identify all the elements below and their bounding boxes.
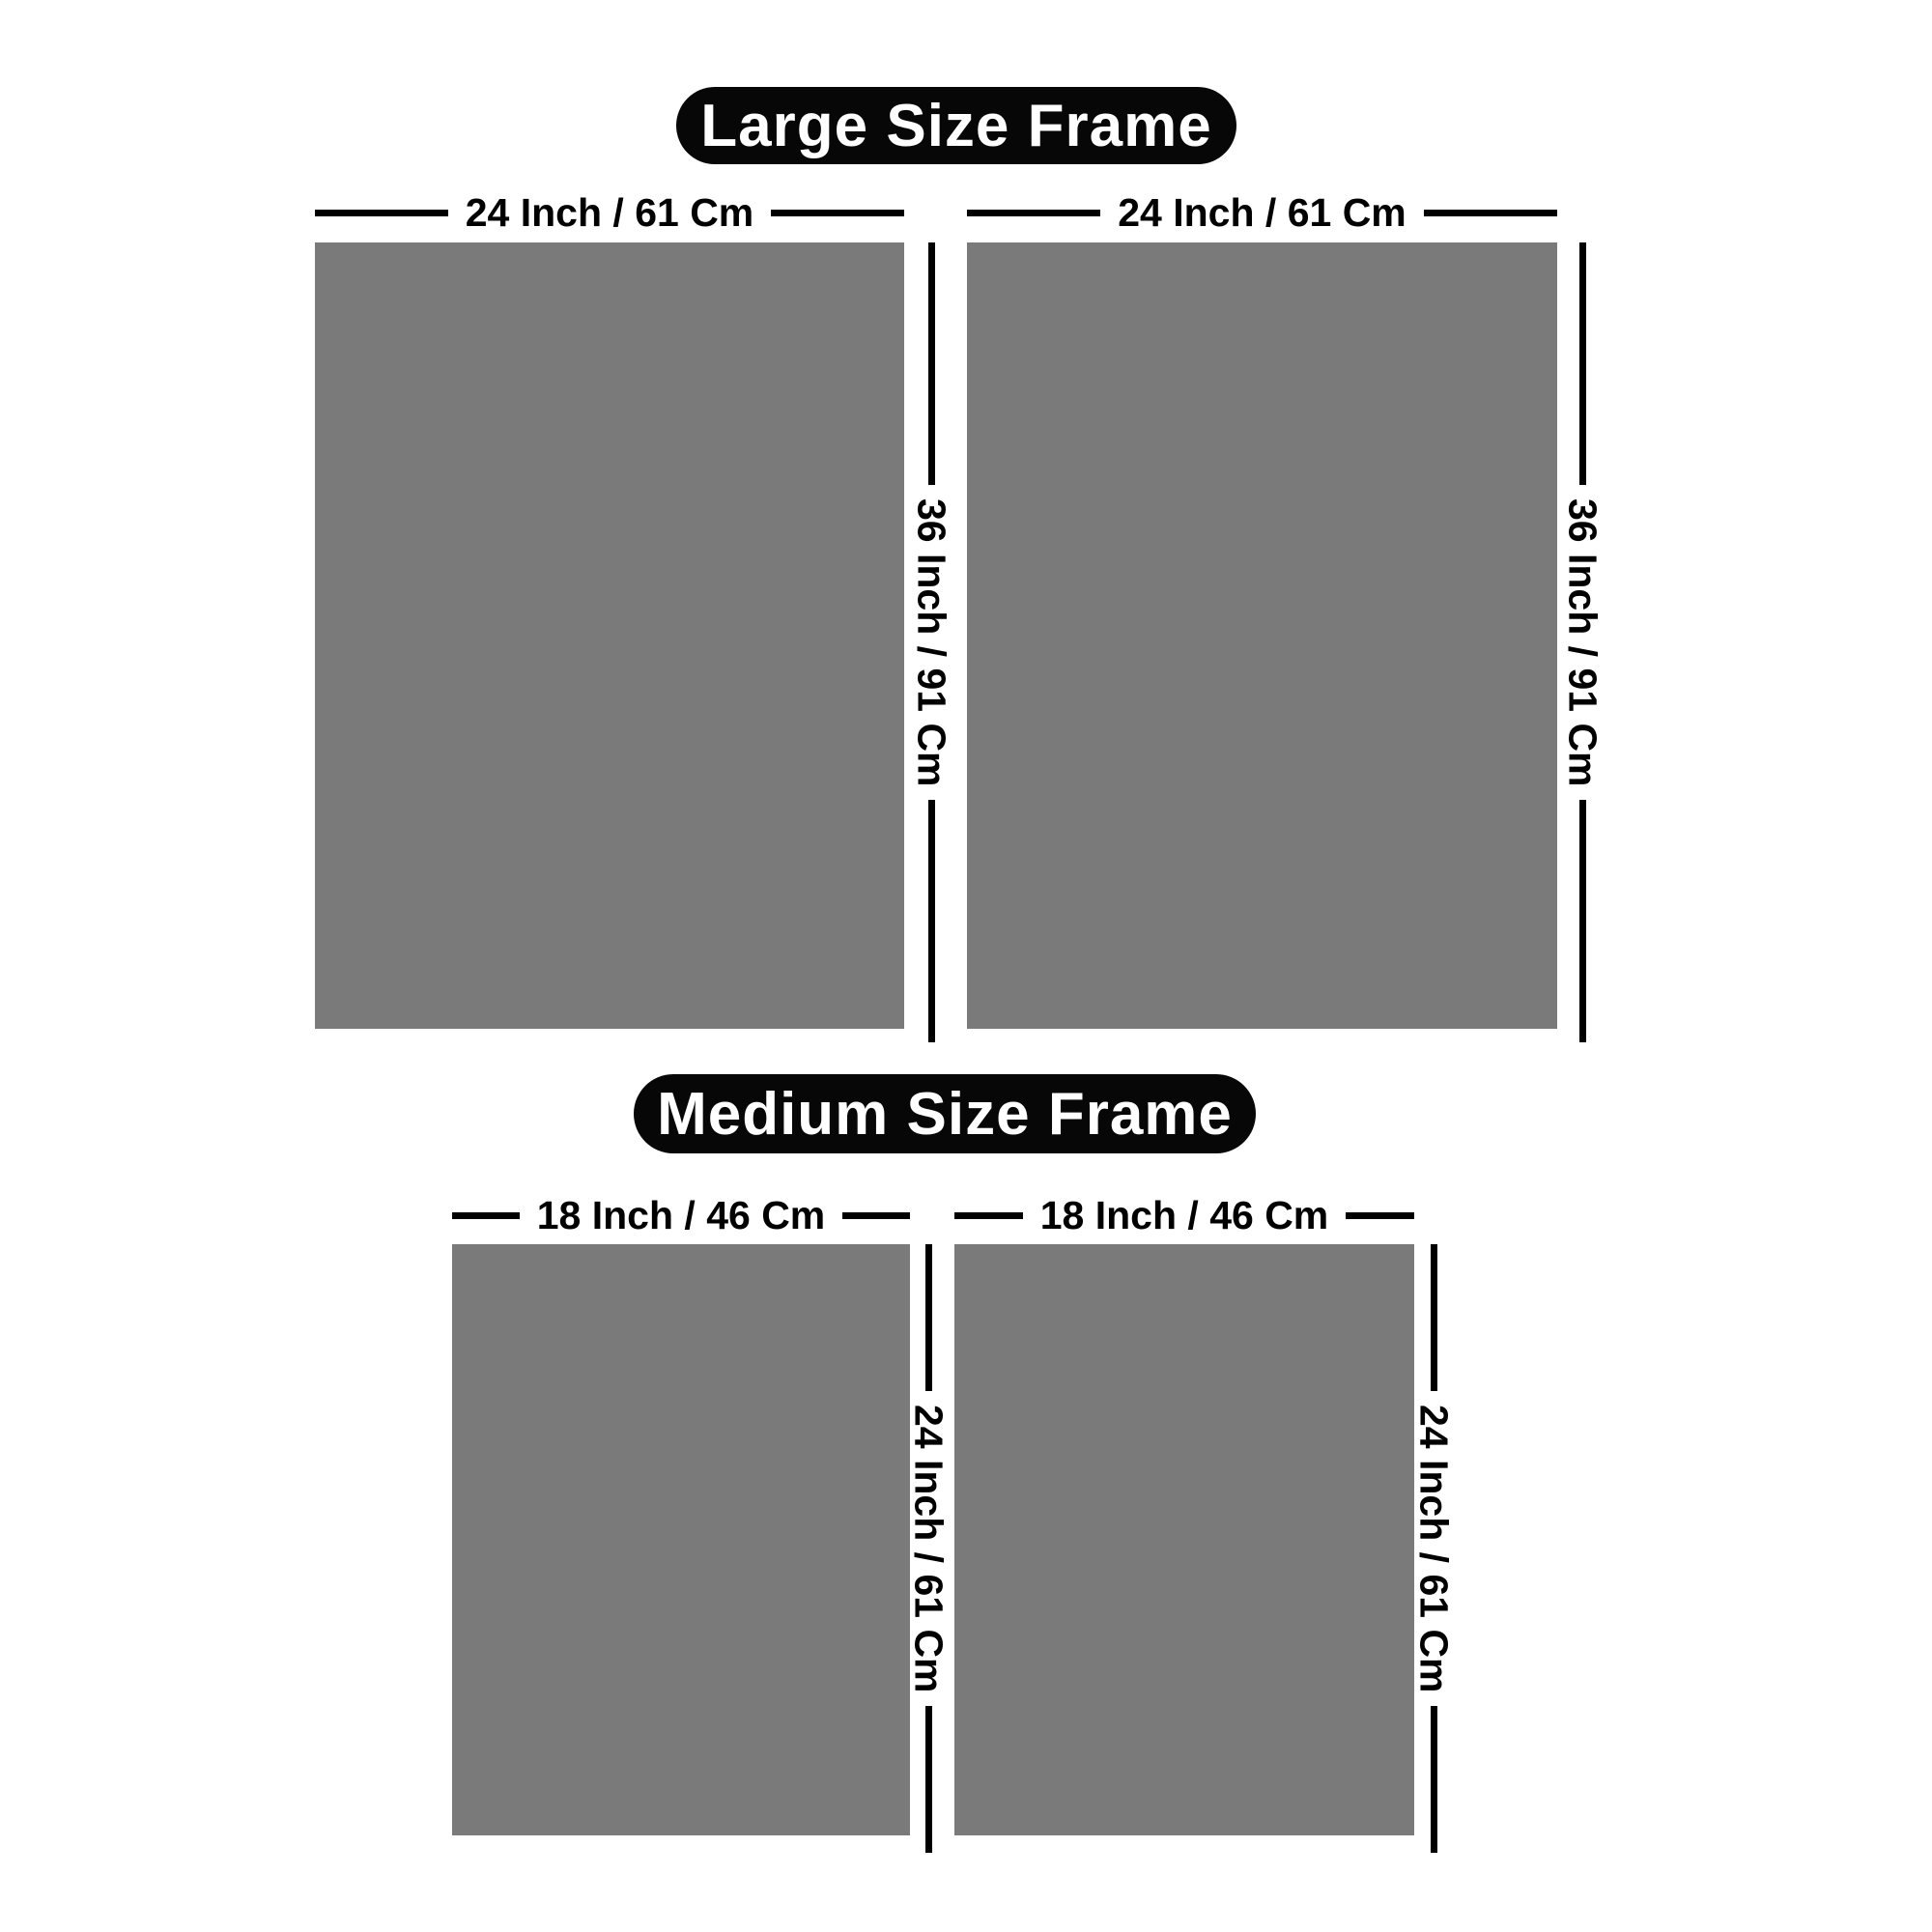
medium-size-title-badge: Medium Size Frame bbox=[634, 1074, 1256, 1153]
dimension-line-left bbox=[967, 210, 1100, 216]
dimension-line-bottom bbox=[928, 800, 935, 1042]
dimension-line-left bbox=[315, 210, 448, 216]
medium-frame-2-width-label: 18 Inch / 46 Cm bbox=[1040, 1196, 1329, 1236]
medium-frame-1-width-label: 18 Inch / 46 Cm bbox=[537, 1196, 826, 1236]
dimension-line-right bbox=[1346, 1212, 1414, 1219]
large-frame-1-preview bbox=[315, 242, 904, 1029]
medium-frame-2-preview bbox=[954, 1244, 1414, 1835]
dimension-line-right bbox=[771, 210, 904, 216]
dimension-line-bottom bbox=[1431, 1706, 1437, 1853]
medium-size-title: Medium Size Frame bbox=[657, 1080, 1233, 1149]
large-frame-1-width-label: 24 Inch / 61 Cm bbox=[466, 193, 754, 233]
dimension-line-right bbox=[842, 1212, 910, 1219]
frame-size-guide: Large Size Frame 24 Inch / 61 Cm 24 Inch… bbox=[0, 0, 1932, 1932]
large-frame-1-width-dimension: 24 Inch / 61 Cm bbox=[315, 191, 904, 234]
dimension-line-left bbox=[954, 1212, 1023, 1219]
large-frame-2-height-label: 36 Inch / 91 Cm bbox=[1563, 498, 1603, 787]
dimension-line-top bbox=[1431, 1244, 1437, 1391]
large-frame-2-height-dimension: 36 Inch / 91 Cm bbox=[1561, 242, 1604, 1042]
dimension-line-bottom bbox=[1579, 800, 1586, 1042]
medium-frame-1-height-label: 24 Inch / 61 Cm bbox=[909, 1405, 949, 1693]
large-frame-2-preview bbox=[967, 242, 1557, 1029]
dimension-line-top bbox=[1579, 242, 1586, 485]
large-frame-2-width-label: 24 Inch / 61 Cm bbox=[1118, 193, 1406, 233]
dimension-line-top bbox=[925, 1244, 932, 1391]
medium-frame-1-preview bbox=[452, 1244, 910, 1835]
large-frame-1-height-label: 36 Inch / 91 Cm bbox=[912, 498, 952, 787]
medium-frame-2-height-dimension: 24 Inch / 61 Cm bbox=[1412, 1244, 1455, 1853]
dimension-line-bottom bbox=[925, 1706, 932, 1853]
dimension-line-left bbox=[452, 1212, 520, 1219]
dimension-line-right bbox=[1424, 210, 1557, 216]
large-size-title-badge: Large Size Frame bbox=[676, 87, 1236, 164]
medium-frame-1-width-dimension: 18 Inch / 46 Cm bbox=[452, 1194, 910, 1236]
dimension-line-top bbox=[928, 242, 935, 485]
large-frame-1-height-dimension: 36 Inch / 91 Cm bbox=[910, 242, 952, 1042]
large-frame-2-width-dimension: 24 Inch / 61 Cm bbox=[967, 191, 1557, 234]
medium-frame-2-height-label: 24 Inch / 61 Cm bbox=[1414, 1405, 1454, 1693]
medium-frame-1-height-dimension: 24 Inch / 61 Cm bbox=[907, 1244, 950, 1853]
medium-frame-2-width-dimension: 18 Inch / 46 Cm bbox=[954, 1194, 1414, 1236]
large-size-title: Large Size Frame bbox=[700, 92, 1211, 160]
